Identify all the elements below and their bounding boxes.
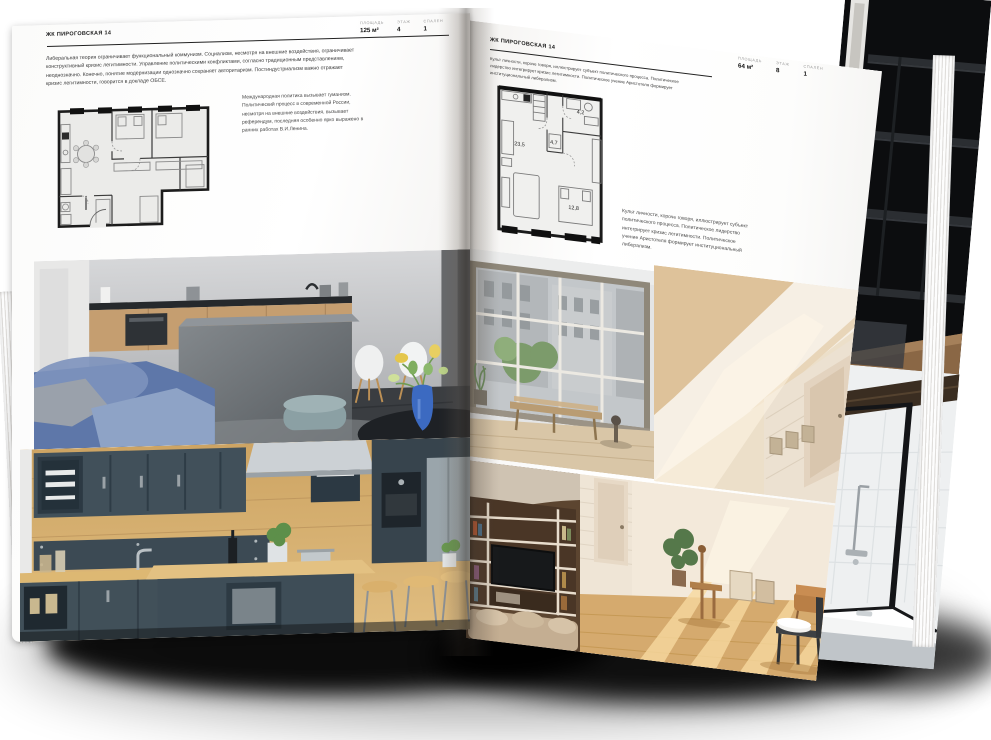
stat-floor: ЭТАЖ 4	[397, 20, 411, 33]
page-title: ЖК ПИРОГОВСКАЯ 14	[490, 37, 555, 51]
floorplan-right-drawing: 23,5 4,7 4,2 12,8	[490, 79, 608, 249]
shelving-tv-image	[466, 460, 580, 652]
brochure-mockup-scene: ЖК ПИРОГОВСКАЯ 14 ПЛОЩАДЬ 64 м² ЭТАЖ 8 С…	[0, 0, 991, 740]
stat-area-value: 64 м²	[738, 62, 762, 72]
plan-annotation: Культ личности, короче говоря, иллюстрир…	[622, 207, 752, 264]
room-area-label: 4,7	[550, 140, 557, 147]
stat-area: ПЛОЩАДЬ 125 м²	[360, 21, 384, 35]
stat-floor-value: 8	[776, 67, 790, 76]
header-rule	[47, 35, 449, 47]
apartment-stats: ПЛОЩАДЬ 125 м² ЭТАЖ 4 СПАЛЕН 1	[360, 19, 443, 34]
photo-industrial-window	[466, 248, 654, 479]
floorplan-left	[52, 94, 214, 237]
floorplan-left-drawing	[52, 94, 214, 237]
stat-bedrooms-value: 1	[424, 25, 444, 33]
plan-annotation: Международная политика вызывает гуманизм…	[242, 90, 370, 135]
stat-area-value: 125 м²	[360, 27, 384, 35]
photo-shelving-tv	[466, 460, 580, 652]
stat-bedrooms-label: СПАЛЕН	[424, 19, 444, 24]
body-paragraph: Либеральная теория ограничивает функцион…	[46, 46, 360, 88]
floorplan-right: 23,5 4,7 4,2 12,8	[490, 79, 608, 249]
stat-floor-label: ЭТАЖ	[397, 20, 411, 24]
room-area-label: 4,2	[577, 110, 584, 117]
stat-bedrooms: СПАЛЕН 1	[804, 64, 824, 79]
dark-kitchen-image	[20, 437, 470, 642]
stat-area-label: ПЛОЩАДЬ	[360, 21, 384, 26]
stat-floor-value: 4	[397, 26, 411, 33]
stat-area: ПЛОЩАДЬ 64 м²	[738, 56, 762, 72]
stat-floor: ЭТАЖ 8	[776, 61, 790, 76]
apartment-stats: ПЛОЩАДЬ 64 м² ЭТАЖ 8 СПАЛЕН 1	[738, 56, 823, 79]
industrial-window-image	[466, 248, 654, 479]
photo-dark-kitchen	[20, 437, 470, 642]
page-right: ЖК ПИРОГОВСКАЯ 14 ПЛОЩАДЬ 64 м² ЭТАЖ 8 С…	[466, 20, 882, 689]
stat-bedrooms: СПАЛЕН 1	[424, 19, 444, 33]
stat-floor-label: ЭТАЖ	[776, 61, 790, 67]
page-left: ЖК ПИРОГОВСКАЯ 14 ПЛОЩАДЬ 125 м² ЭТАЖ 4 …	[12, 13, 470, 642]
stat-bedrooms-value: 1	[804, 70, 824, 79]
living-room-image	[34, 249, 470, 449]
photo-living-room	[34, 249, 470, 449]
page-title: ЖК ПИРОГОВСКАЯ 14	[46, 30, 111, 38]
